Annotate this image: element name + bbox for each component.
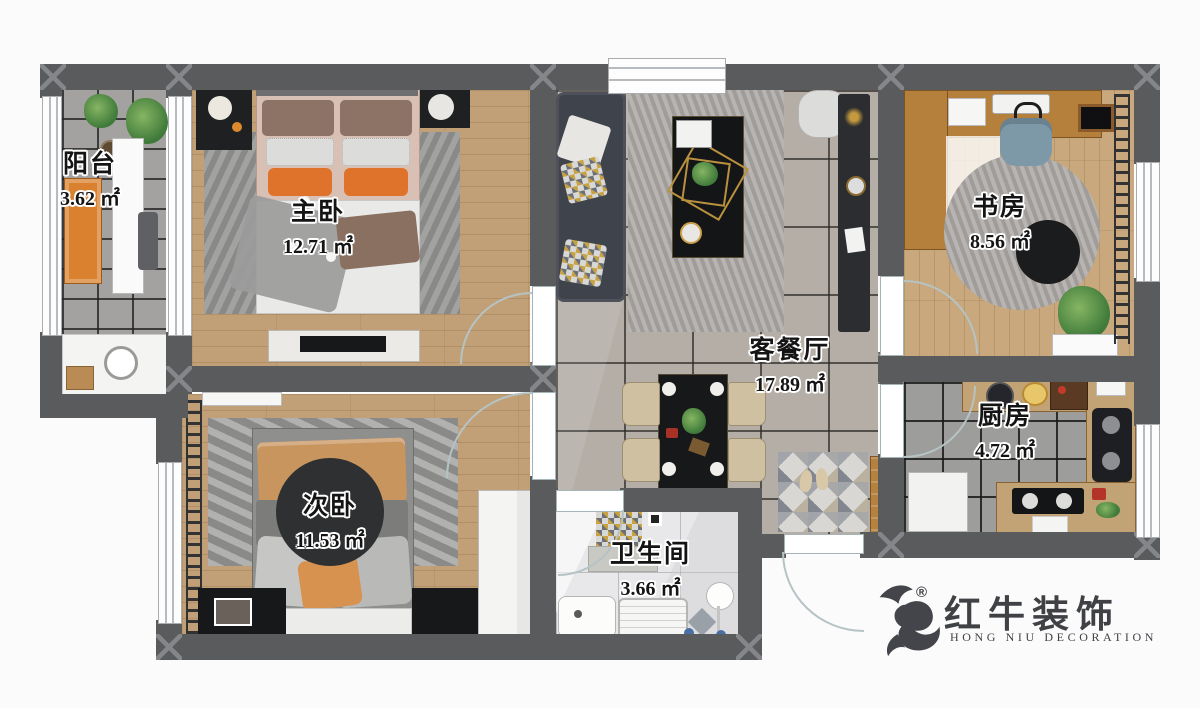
bedroom2-label: 次卧 11.53 ㎡ bbox=[240, 492, 420, 553]
coffee-table-plant bbox=[692, 162, 718, 186]
floor-plan: 阳台 3.62 ㎡ 主卧 12.71 ㎡ 书房 8.56 ㎡ 客餐厅 17.89… bbox=[0, 0, 1200, 708]
balcony-label: 阳台 3.62 ㎡ bbox=[30, 150, 150, 211]
tv-console-papers bbox=[844, 227, 865, 253]
balcony-area: 3.62 ㎡ bbox=[30, 188, 150, 211]
wall-master-living-upper bbox=[530, 64, 556, 286]
bathroom-door-leaf bbox=[556, 490, 624, 512]
bedroom2-wardrobe bbox=[478, 490, 532, 638]
wall-study-kitchen-divider bbox=[878, 356, 1160, 382]
dining-chair-4 bbox=[728, 438, 766, 482]
wall-top-right bbox=[722, 64, 1160, 90]
bathroom-area: 3.66 ㎡ bbox=[568, 578, 733, 601]
master-label: 主卧 12.71 ㎡ bbox=[228, 198, 408, 259]
kitchen-name: 厨房 bbox=[925, 402, 1085, 431]
window-balcony-left bbox=[42, 96, 62, 336]
dining-plate-1 bbox=[662, 382, 676, 396]
tv-console-bowl bbox=[846, 176, 866, 196]
master-pillow-brown-right bbox=[340, 100, 412, 136]
entry-door-leaf bbox=[784, 534, 864, 554]
coffee-table-cup bbox=[680, 222, 702, 244]
master-lamp-accent bbox=[232, 122, 242, 132]
master-nightstand-decor bbox=[428, 94, 454, 120]
master-lamp bbox=[208, 96, 232, 120]
bathroom-sink bbox=[558, 596, 616, 638]
kitchen-label: 厨房 4.72 ㎡ bbox=[925, 402, 1085, 463]
master-door-leaf bbox=[532, 286, 556, 366]
corner-joint-1 bbox=[40, 64, 66, 90]
study-radiator bbox=[1114, 94, 1130, 344]
window-bedroom2-left bbox=[158, 462, 182, 624]
entry-door-swing bbox=[782, 552, 864, 632]
corner-joint-6 bbox=[156, 634, 182, 660]
wall-living-study-divider bbox=[878, 64, 904, 276]
bedroom2-shelf bbox=[202, 392, 282, 406]
fridge bbox=[908, 472, 968, 532]
bathroom-label: 卫生间 3.66 ㎡ bbox=[568, 540, 733, 601]
kitchen-pepper bbox=[1092, 488, 1106, 500]
wall-balcony-left-bottom bbox=[40, 332, 62, 396]
balcony-plant bbox=[84, 94, 118, 128]
master-pillow-lace-right bbox=[342, 138, 410, 166]
study-area: 8.56 ㎡ bbox=[915, 231, 1085, 254]
wall-bathroom-top-left bbox=[530, 488, 558, 512]
wall-top-left bbox=[40, 64, 610, 90]
study-chair bbox=[1000, 118, 1052, 166]
wall-bottom-kitchen bbox=[860, 532, 1160, 558]
wall-bottom-main bbox=[156, 634, 762, 660]
master-pillow-orange-left bbox=[268, 168, 332, 196]
master-area: 12.71 ㎡ bbox=[228, 236, 408, 259]
dining-plate-3 bbox=[662, 462, 676, 476]
corner-joint-4 bbox=[878, 64, 904, 90]
master-pillow-orange-right bbox=[344, 168, 408, 196]
wall-bedroom2-left-top bbox=[156, 394, 182, 464]
study-book bbox=[948, 98, 986, 126]
bull-logo-icon bbox=[872, 580, 948, 660]
wall-master-bedroom2-divider bbox=[166, 366, 530, 392]
corner-joint-9 bbox=[166, 366, 192, 392]
glass-door-balcony-master bbox=[168, 96, 192, 336]
window-study-right bbox=[1136, 162, 1160, 282]
kitchen-area: 4.72 ㎡ bbox=[925, 440, 1085, 463]
window-living-top bbox=[608, 58, 726, 94]
balcony-stool bbox=[138, 212, 158, 270]
bathroom-qr-tile bbox=[648, 512, 662, 526]
dining-chair-1 bbox=[622, 382, 660, 426]
dining-plate-4 bbox=[710, 462, 724, 476]
kitchen-tray bbox=[1096, 380, 1126, 396]
dining-red-dish bbox=[666, 428, 678, 438]
kitchen-tomato bbox=[1058, 386, 1066, 394]
bathroom-name: 卫生间 bbox=[568, 540, 733, 569]
corner-joint-5 bbox=[1134, 64, 1160, 90]
study-tablet bbox=[1078, 104, 1114, 132]
sofa-pillow-pattern-2 bbox=[559, 239, 608, 288]
corner-joint-10 bbox=[878, 532, 904, 558]
master-pillow-brown-left bbox=[262, 100, 334, 136]
living-label: 客餐厅 17.89 ㎡ bbox=[700, 336, 880, 397]
corner-joint-7 bbox=[736, 634, 762, 660]
kitchen-door-leaf bbox=[880, 384, 904, 458]
balcony-wood-stool bbox=[66, 366, 94, 390]
company-logo: ® 红牛装饰 HONG NIU DECORATION bbox=[872, 576, 1182, 664]
study-planter bbox=[1052, 334, 1118, 356]
window-kitchen-right bbox=[1136, 424, 1160, 538]
registered-mark: ® bbox=[916, 584, 927, 601]
bedroom2-name: 次卧 bbox=[240, 492, 420, 521]
corner-joint-3 bbox=[530, 64, 556, 90]
living-name: 客餐厅 bbox=[700, 336, 880, 365]
wall-junction-center bbox=[530, 362, 556, 394]
tv-console-gold-plant bbox=[844, 104, 864, 130]
living-area: 17.89 ㎡ bbox=[700, 374, 880, 397]
study-label: 书房 8.56 ㎡ bbox=[915, 193, 1085, 254]
dining-chair-2 bbox=[622, 438, 660, 482]
coffee-table-books bbox=[676, 120, 712, 148]
kitchen-sink-bowl-1 bbox=[1102, 416, 1120, 434]
master-pillow-lace-left bbox=[266, 138, 334, 166]
washing-machine bbox=[104, 346, 138, 380]
brand-subtitle: HONG NIU DECORATION bbox=[950, 630, 1157, 645]
stove-burner-1 bbox=[1022, 493, 1038, 509]
balcony-name: 阳台 bbox=[30, 150, 150, 179]
stove-burner-2 bbox=[1056, 493, 1072, 509]
dining-centerpiece-plant bbox=[682, 408, 706, 434]
kitchen-sink-bowl-2 bbox=[1102, 452, 1120, 470]
study-plant bbox=[1058, 286, 1110, 340]
entry-rug bbox=[778, 452, 868, 532]
bedroom2-door-leaf bbox=[532, 392, 556, 480]
sink-faucet bbox=[574, 610, 582, 618]
study-door-leaf bbox=[880, 276, 904, 356]
corner-joint-2 bbox=[166, 64, 192, 90]
master-tv bbox=[300, 336, 386, 352]
wall-right-mid bbox=[1134, 278, 1160, 426]
bedroom2-area: 11.53 ㎡ bbox=[240, 530, 420, 553]
study-name: 书房 bbox=[915, 193, 1085, 222]
master-name: 主卧 bbox=[228, 198, 408, 227]
bedroom2-photo-frame bbox=[214, 598, 252, 626]
kitchen-greens bbox=[1096, 502, 1120, 518]
